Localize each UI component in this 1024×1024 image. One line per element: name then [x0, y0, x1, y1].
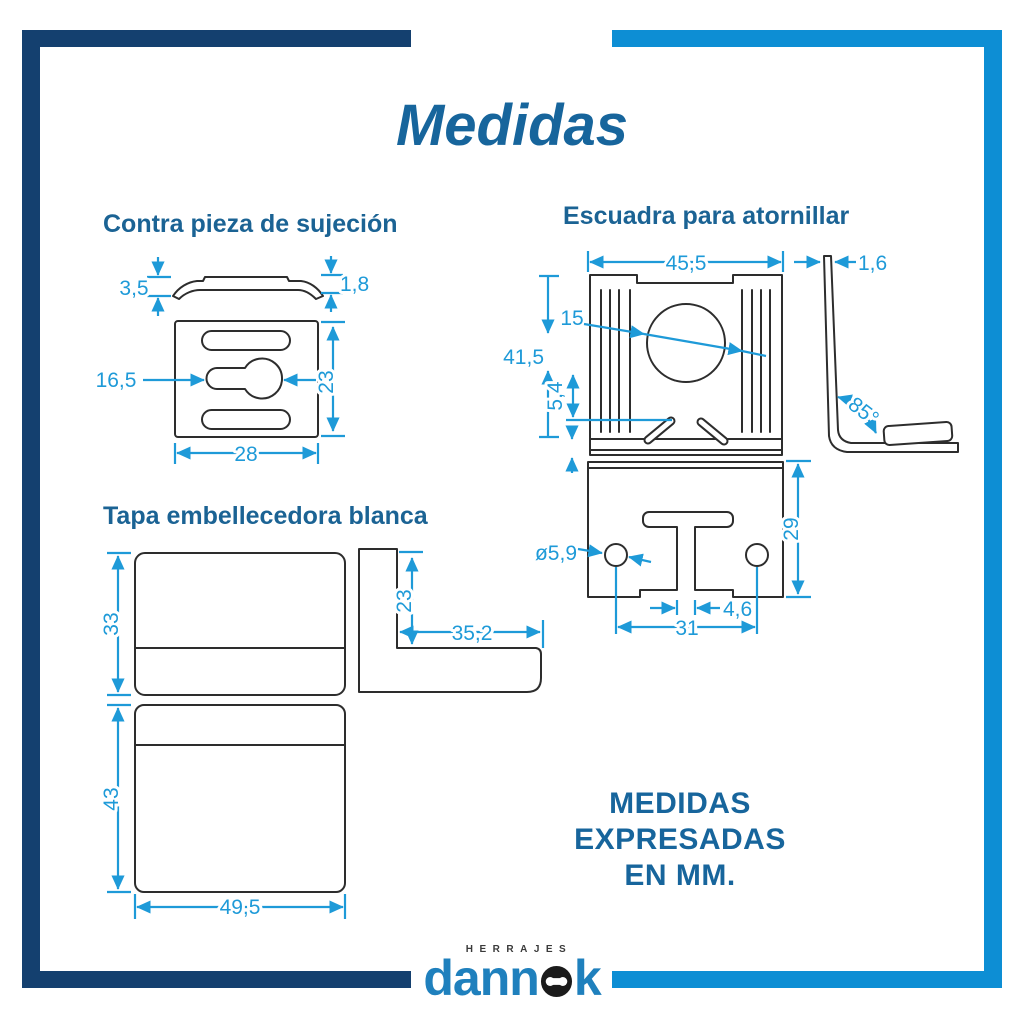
- tapa-side-dims: 23 35,2: [393, 552, 543, 648]
- brand-name-suffix: k: [574, 956, 601, 1000]
- escuadra-lower-plate-view: [588, 462, 783, 597]
- dim-label-1-8: 1,8: [340, 273, 369, 296]
- screw-hole-right: [746, 544, 768, 566]
- dim-label-16-5: 16,5: [96, 369, 137, 392]
- dim-label-o5-9: ø5,9: [535, 542, 577, 565]
- dim-label-1-6: 1,6: [858, 252, 887, 275]
- dim-label-33: 33: [100, 612, 123, 635]
- escuadra-front-view: [590, 275, 782, 455]
- dim-label-3-5: 3,5: [119, 277, 148, 300]
- brand-logo: HERRAJES dann k: [402, 944, 622, 1000]
- dim-label-85: 85°: [844, 393, 883, 431]
- dim-label-49-5: 49,5: [220, 896, 261, 919]
- dim-label-5-4: 5,4: [544, 381, 567, 411]
- units-note-line1: MEDIDAS EXPRESADAS: [510, 786, 850, 858]
- top-slot: [202, 331, 290, 350]
- units-note: MEDIDAS EXPRESADAS EN MM.: [510, 786, 850, 894]
- tapa-front-view: [135, 553, 345, 695]
- bottom-slot: [202, 410, 290, 429]
- tapa-side-view: [359, 549, 541, 692]
- brand-name: dann k: [402, 956, 622, 1000]
- units-note-line2: EN MM.: [510, 858, 850, 894]
- brand-name-prefix: dann: [423, 956, 538, 1000]
- escuadra-side-view: [824, 256, 958, 452]
- tapa-front-dims: 33: [100, 553, 131, 695]
- escuadra-side-dims: 1,6 85°: [794, 252, 887, 433]
- tapa-bottom-view: [135, 705, 345, 892]
- dim-label-43: 43: [100, 787, 123, 810]
- dim-label-31: 31: [675, 617, 698, 640]
- dim-label-45-5: 45,5: [666, 252, 707, 275]
- dim-label-35-2: 35,2: [452, 622, 493, 645]
- dim-label-23-side: 23: [393, 589, 416, 612]
- screw-hole-left: [605, 544, 627, 566]
- dim-label-15: 15: [560, 307, 583, 330]
- keyhole-o-icon: [540, 965, 573, 998]
- dim-label-29: 29: [780, 517, 803, 540]
- dim-label-41-5: 41,5: [503, 346, 544, 369]
- dim-label-23: 23: [315, 370, 338, 393]
- side-pad: [883, 422, 952, 446]
- poster: Medidas Contra pieza de sujeción Escuadr…: [0, 0, 1024, 1024]
- dim-label-4-6: 4,6: [723, 598, 752, 621]
- dim-label-28: 28: [234, 443, 257, 466]
- contra-pieza-profile-view: [173, 277, 323, 299]
- center-hole: [647, 304, 725, 382]
